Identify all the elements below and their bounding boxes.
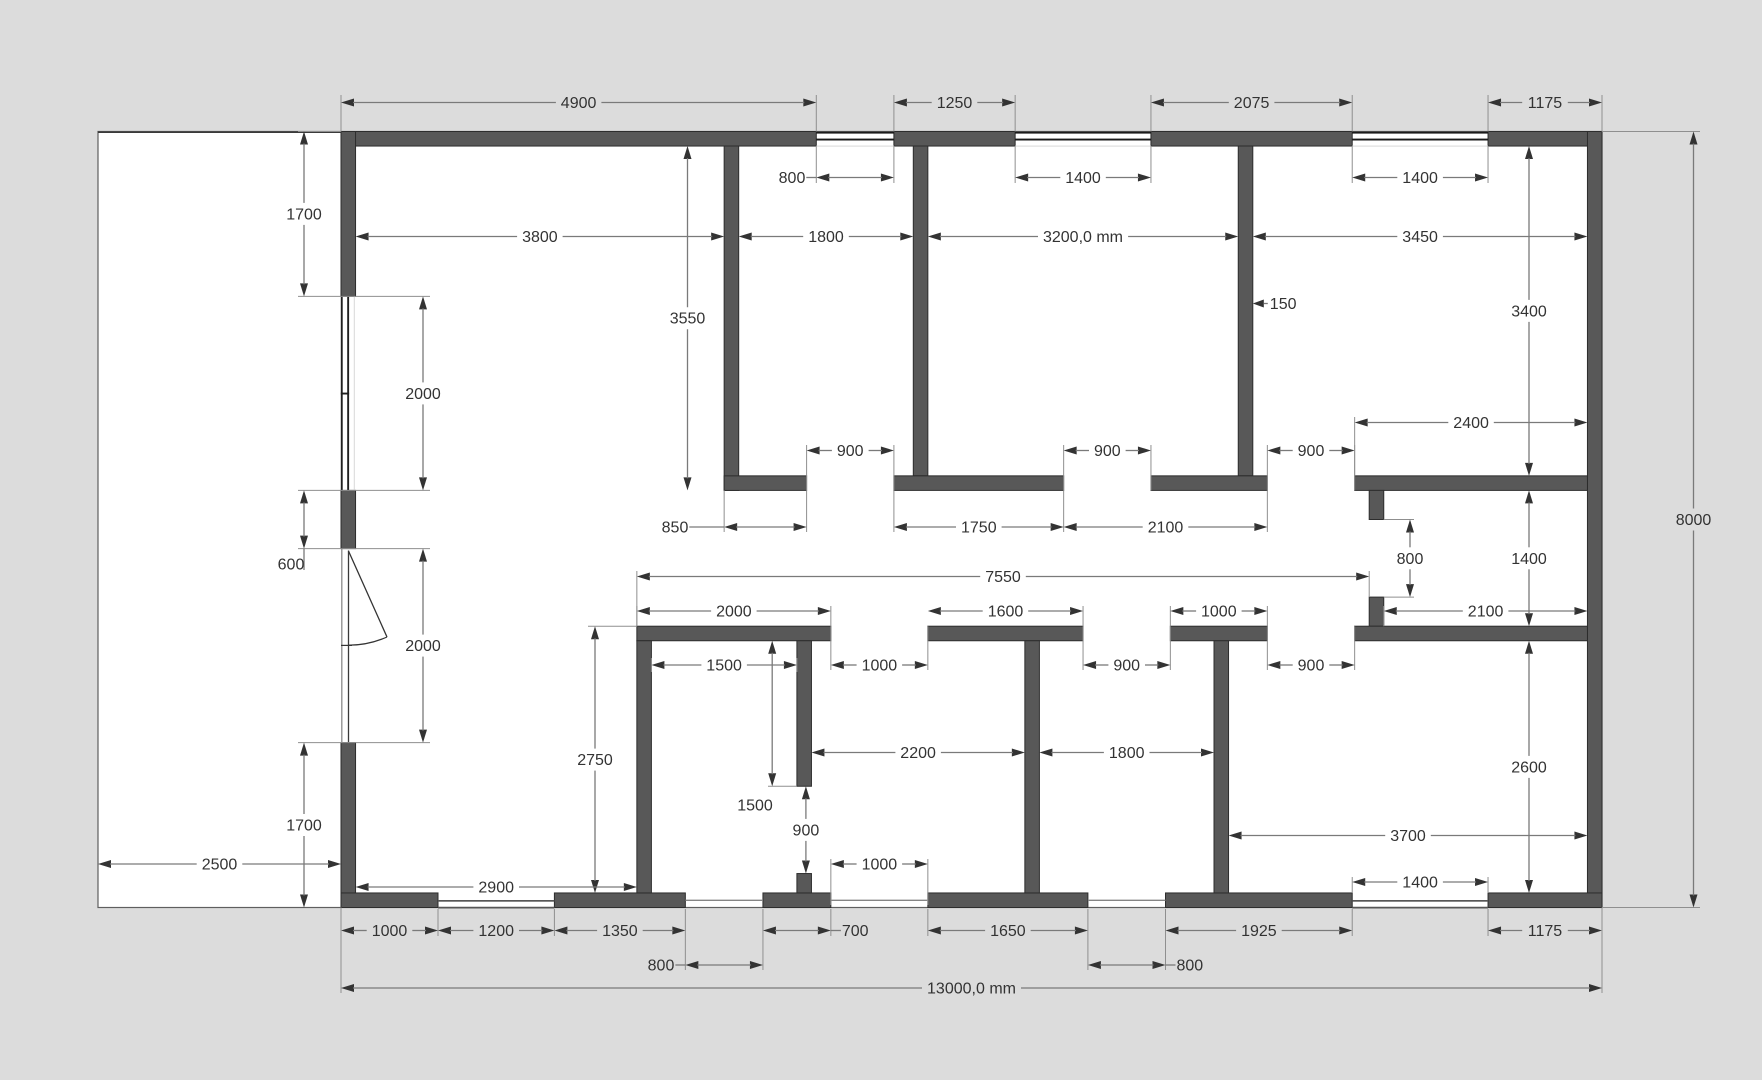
svg-text:1800: 1800 <box>808 229 844 246</box>
svg-text:2900: 2900 <box>478 880 514 897</box>
svg-text:1000: 1000 <box>862 658 898 675</box>
svg-text:1000: 1000 <box>1201 604 1237 621</box>
svg-text:1250: 1250 <box>937 95 973 112</box>
svg-text:3700: 3700 <box>1390 828 1426 845</box>
svg-text:600: 600 <box>278 557 305 574</box>
svg-text:2750: 2750 <box>577 752 613 769</box>
svg-text:13000,0 mm: 13000,0 mm <box>927 981 1016 998</box>
svg-text:3200,0 mm: 3200,0 mm <box>1043 229 1123 246</box>
svg-text:3800: 3800 <box>522 229 558 246</box>
svg-text:900: 900 <box>793 822 820 839</box>
svg-text:800: 800 <box>1176 958 1203 975</box>
svg-text:3450: 3450 <box>1402 229 1438 246</box>
svg-text:1750: 1750 <box>961 520 997 537</box>
svg-text:1650: 1650 <box>990 923 1026 940</box>
svg-text:7550: 7550 <box>985 569 1021 586</box>
svg-text:1200: 1200 <box>478 923 514 940</box>
svg-text:2200: 2200 <box>900 745 936 762</box>
svg-text:1000: 1000 <box>862 857 898 874</box>
svg-text:2100: 2100 <box>1148 520 1184 537</box>
svg-text:1400: 1400 <box>1402 875 1438 892</box>
svg-text:1500: 1500 <box>706 658 742 675</box>
svg-text:1500: 1500 <box>737 798 773 815</box>
svg-text:800: 800 <box>648 958 675 975</box>
svg-text:1350: 1350 <box>602 923 638 940</box>
svg-text:850: 850 <box>662 520 689 537</box>
svg-text:1175: 1175 <box>1528 923 1563 940</box>
svg-text:900: 900 <box>1298 658 1325 675</box>
svg-text:2000: 2000 <box>405 386 441 403</box>
svg-text:1000: 1000 <box>372 923 408 940</box>
svg-text:1400: 1400 <box>1511 551 1547 568</box>
svg-text:900: 900 <box>1113 658 1140 675</box>
svg-text:3550: 3550 <box>670 311 706 328</box>
svg-text:900: 900 <box>1094 443 1121 460</box>
svg-text:1800: 1800 <box>1109 745 1145 762</box>
svg-text:1600: 1600 <box>988 604 1024 621</box>
svg-text:700: 700 <box>842 923 869 940</box>
svg-text:800: 800 <box>779 170 806 187</box>
svg-text:2500: 2500 <box>202 857 238 874</box>
svg-text:2400: 2400 <box>1453 415 1489 432</box>
svg-text:150: 150 <box>1270 296 1297 313</box>
svg-text:900: 900 <box>837 443 864 460</box>
svg-text:2000: 2000 <box>405 638 441 655</box>
svg-text:900: 900 <box>1298 443 1325 460</box>
svg-text:8000: 8000 <box>1676 512 1712 529</box>
svg-text:1700: 1700 <box>286 206 322 223</box>
svg-text:1175: 1175 <box>1528 95 1563 112</box>
svg-text:2075: 2075 <box>1234 95 1270 112</box>
svg-text:2000: 2000 <box>716 604 752 621</box>
svg-text:1400: 1400 <box>1065 170 1101 187</box>
svg-text:2600: 2600 <box>1511 759 1547 776</box>
svg-text:2100: 2100 <box>1468 604 1504 621</box>
svg-text:1400: 1400 <box>1402 170 1438 187</box>
svg-text:1925: 1925 <box>1241 923 1277 940</box>
svg-text:3400: 3400 <box>1511 303 1547 320</box>
svg-text:800: 800 <box>1397 551 1424 568</box>
svg-text:4900: 4900 <box>561 95 597 112</box>
svg-text:1700: 1700 <box>286 818 322 835</box>
